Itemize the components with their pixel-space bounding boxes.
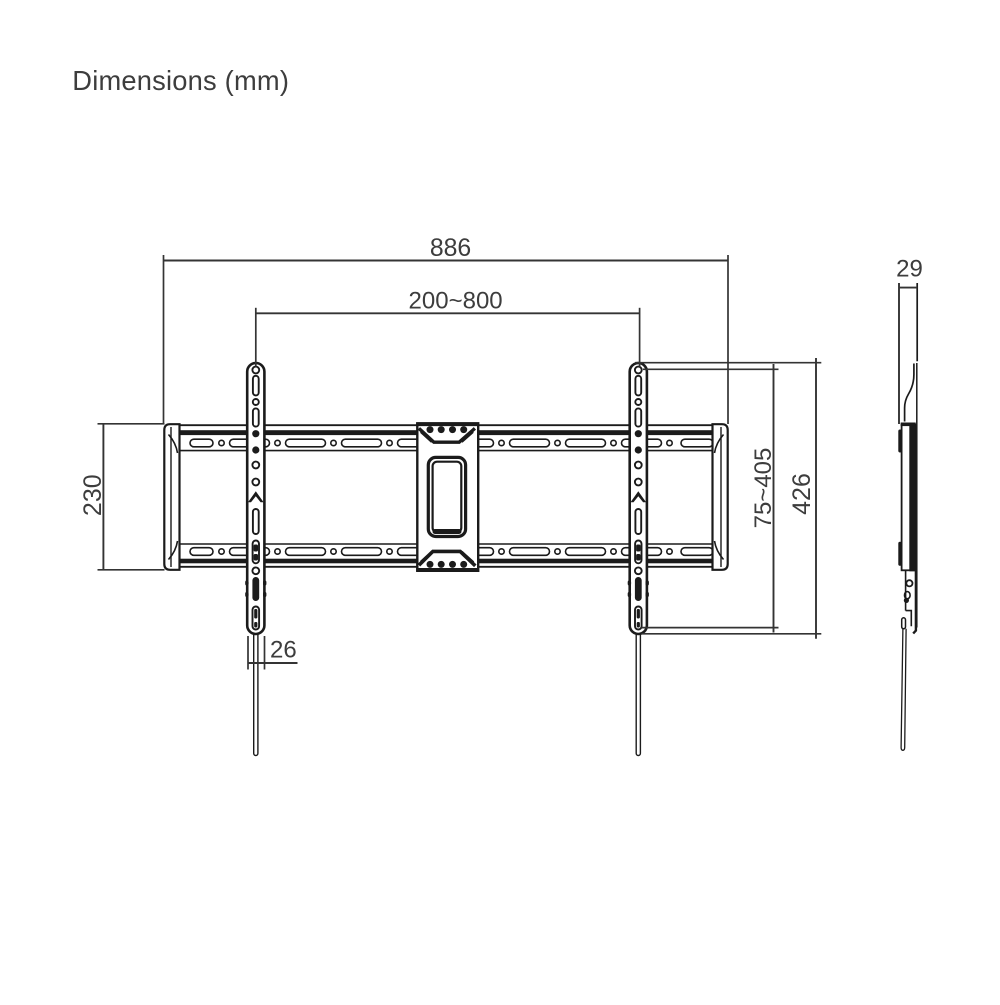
- svg-text:426: 426: [788, 473, 816, 515]
- svg-text:75~405: 75~405: [750, 448, 777, 529]
- svg-text:886: 886: [430, 235, 471, 262]
- svg-text:29: 29: [896, 256, 923, 283]
- svg-text:230: 230: [79, 474, 107, 516]
- svg-text:26: 26: [270, 637, 297, 664]
- svg-text:200~800: 200~800: [409, 287, 503, 314]
- svg-text:Dimensions (mm): Dimensions (mm): [72, 65, 289, 96]
